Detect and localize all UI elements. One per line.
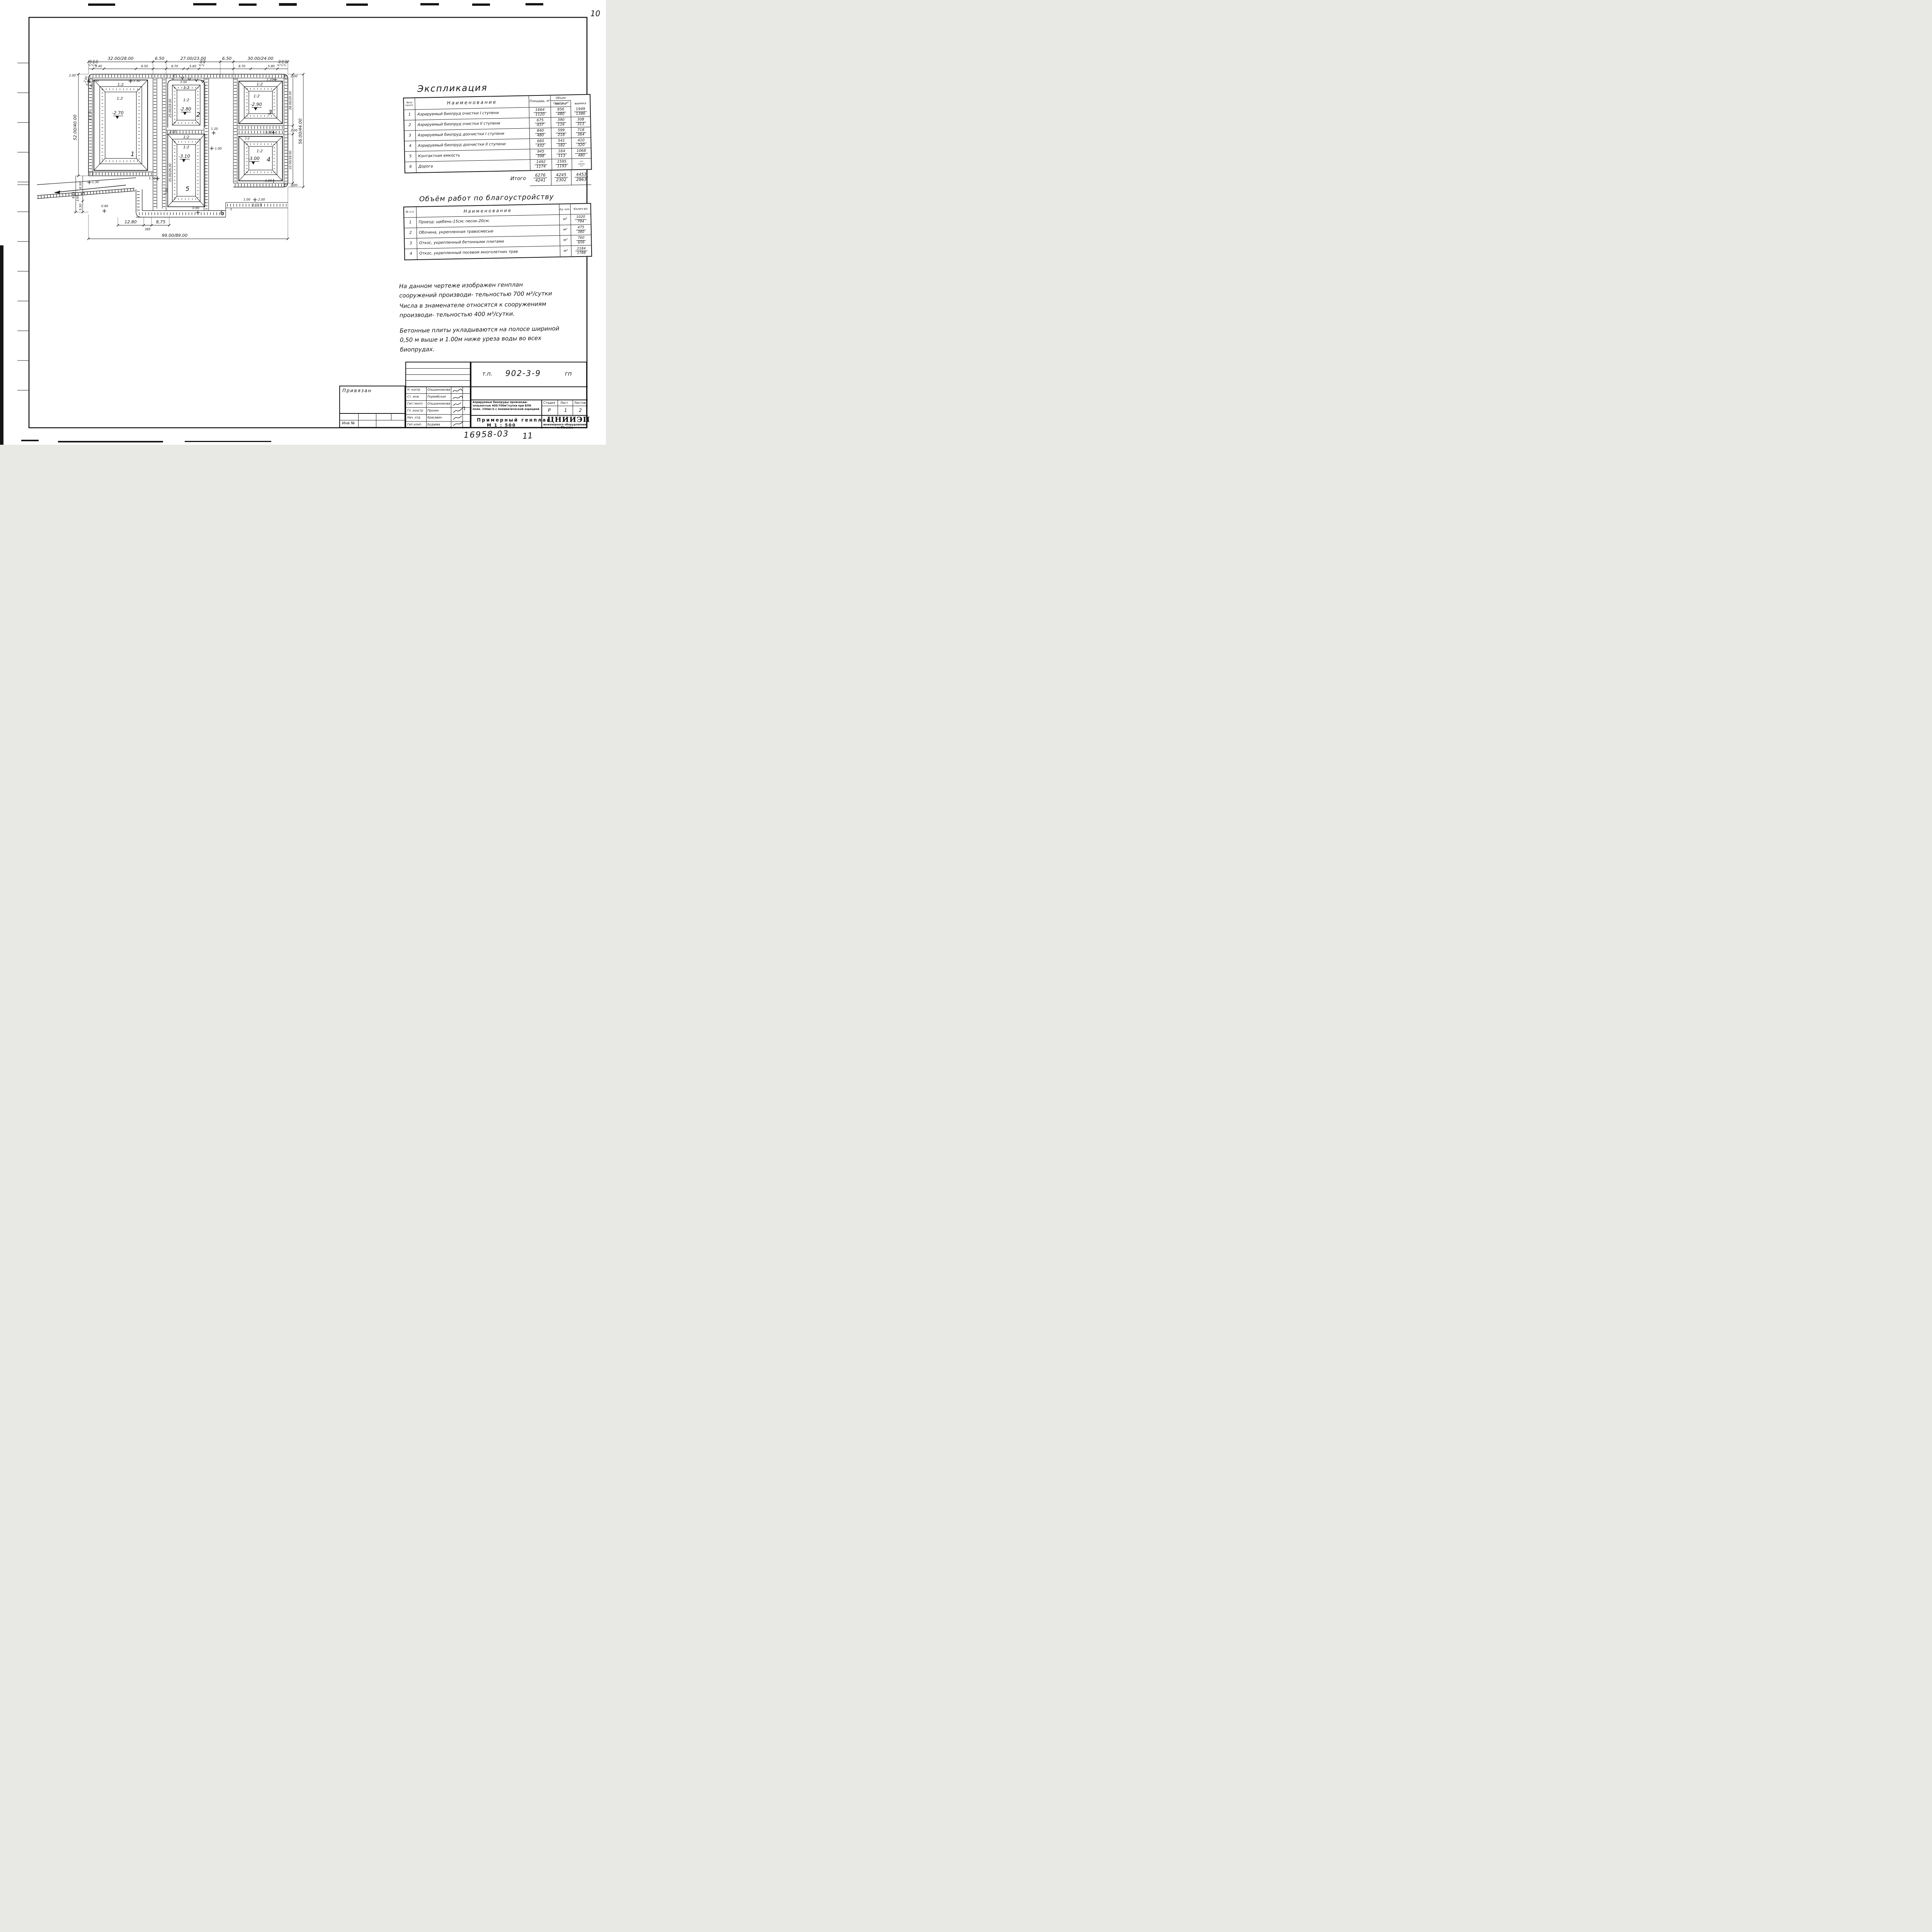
slope-label: 1:2 [117, 83, 124, 87]
cell: м² [560, 214, 571, 225]
cell: 5 [405, 151, 417, 162]
slope-label: 1:2 [183, 145, 189, 150]
cell: 14921174 [530, 159, 552, 170]
role: Нач. отд [407, 416, 420, 419]
dim: 6.50 [222, 56, 232, 61]
dim: 8.70 [171, 65, 178, 68]
col-header: Колич-во [571, 204, 591, 214]
slope-label-road: 1:1.5 [252, 203, 262, 207]
org-name: ЦНИИЭП [547, 415, 590, 424]
dim: 2.00 [291, 75, 298, 78]
dim: 32.00/28.00 [108, 56, 134, 61]
dim: 385 [145, 228, 150, 231]
slope-label: 1:2 [183, 98, 189, 102]
note-1: На данном чертеже изображен генплан соор… [399, 279, 562, 300]
stamp-bound-box: Привязан Инв № [339, 386, 405, 428]
stage-label: Стадия [543, 401, 555, 405]
total-label: Итого [444, 170, 530, 187]
bound-label: Привязан [342, 388, 372, 393]
cell: 1 [404, 110, 416, 121]
dim: 8,75 [156, 219, 166, 224]
cell: 599218 [551, 128, 572, 138]
tp-code: 902-3-9 [505, 369, 541, 378]
note-3: Бетонные плиты укладываются на полосе ши… [400, 324, 562, 354]
doc-number-handwritten: 16958-03 [464, 429, 509, 440]
role: Гл. констр [407, 409, 423, 412]
col-header: Объем грунта, м³ [551, 95, 571, 101]
pond4-number: 4 [267, 156, 270, 163]
cell: 3 [405, 238, 417, 249]
mark-100: 1.00 [243, 198, 250, 201]
mark-130: 1.30 [92, 180, 99, 184]
total-cell: 62764241 [530, 170, 552, 186]
slope-label-left: 1:1.5 [88, 111, 92, 121]
cell: 19491386 [571, 106, 590, 117]
sheets-value: 2 [579, 408, 582, 413]
dim-left-main: 52.00/40.00 [73, 115, 78, 141]
mark-110: 1.10 [267, 78, 274, 81]
role-name: Красавин [427, 416, 442, 419]
slope-label: 1:2 [245, 137, 250, 140]
dim-right-p3: 28.00/20.00 [289, 91, 292, 110]
cell: 475380 [571, 224, 591, 235]
cell: 4 [405, 141, 416, 152]
dim: 2.00 [291, 129, 298, 132]
cell: м² [560, 246, 572, 257]
pond3-number: 3 [268, 109, 272, 116]
total-cell: 44532863 [571, 169, 592, 185]
dim: 5.60 [189, 65, 196, 68]
dim-right-main: 56.00/44.00 [298, 119, 303, 145]
ekspl-table: №по генпл. Наименование Площадь, м² Объе… [403, 94, 592, 173]
cell: 2 [404, 120, 416, 131]
works-table: № п.п. Наименование Ед. изм. Колич-во 1 … [403, 203, 592, 260]
cell: 4 [405, 249, 418, 260]
cell: 840480 [530, 128, 552, 139]
drawing-title: Примерный генплан [477, 417, 551, 423]
stage-value: Р [548, 408, 551, 413]
dim: 5.80 [268, 65, 275, 68]
dim: 8.50 [141, 65, 148, 68]
ekspl-total-row: Итого 62764241 42452302 44532863 [444, 169, 592, 187]
mark-090: 0.90 [192, 206, 199, 210]
dim: 2.00 [291, 184, 298, 187]
stamp-main-box: т.п. 902-3-9 гп Аэрируемые биопруды прои… [471, 362, 587, 428]
cell: 1068480 [572, 148, 591, 159]
dim-bottom-main: 99.00/89.00 [162, 233, 188, 238]
mark-090: 0.90 [101, 204, 108, 208]
role: Гип комп. [407, 423, 422, 426]
dim-right-p4: 22.00/18.00 [289, 151, 292, 170]
dim: 3.95 [76, 195, 80, 201]
tp-label: т.п. [482, 371, 492, 377]
cell: м² [560, 225, 571, 236]
dim: 9.45 [72, 192, 75, 199]
cell: 2 [405, 228, 417, 239]
dim-lines-bottom [87, 187, 289, 240]
slope-label: 1:2 [117, 97, 123, 101]
slope-label: 1:2 [183, 135, 189, 139]
cell: 675437 [529, 117, 551, 128]
col-header: насыпь [551, 100, 571, 107]
dim: 30.00/24.00 [248, 56, 274, 61]
cell: 1020794 [571, 214, 591, 225]
mark-130: 1.30 [149, 177, 156, 180]
cell: 760656 [571, 235, 591, 246]
ekspl-title: Экспликация [417, 83, 488, 94]
dim: 5.50 [79, 204, 82, 211]
cell: 3 [405, 131, 416, 141]
inv-label: Инв № [342, 421, 355, 425]
notes: На данном чертеже изображен генплан соор… [399, 279, 563, 355]
page-number: 10 [590, 9, 600, 18]
dim-gap: 2.00 [169, 130, 176, 134]
role-name: Ольшанникова [427, 388, 450, 391]
slope-label: 1:2 [257, 149, 263, 153]
col-header: № п.п. [404, 207, 417, 218]
cell: 410320 [571, 138, 591, 148]
cell: 6 [405, 162, 417, 173]
dim: 3.50 [180, 80, 187, 84]
mark-100: 1.00 [215, 147, 222, 150]
cell: м² [560, 235, 571, 246]
pond5-number: 5 [185, 185, 189, 192]
dim: 6.50 [155, 56, 165, 61]
cell: 390116 [551, 117, 571, 128]
cell: 660432 [530, 138, 552, 149]
org-city: г. Москва [557, 426, 573, 429]
dim: 8.70 [238, 65, 245, 68]
mark-110: 1.10 [265, 131, 272, 134]
water-level-pond5: -3.10 [179, 153, 190, 159]
col-header: Площадь, м² [529, 95, 551, 107]
role: Н. контр [407, 388, 420, 391]
dim: 8.50 [79, 182, 82, 189]
mark-100: 1.00 [265, 179, 272, 182]
dim: 2.00 [69, 74, 76, 77]
mark-130: 1.30 [92, 79, 99, 83]
col-header: №по генпл. [404, 98, 415, 110]
water-level-pond2: -2.80 [180, 106, 191, 112]
cell: —— [572, 158, 591, 169]
extra-number-handwritten: 11 [522, 431, 533, 441]
cell: 164113 [552, 148, 572, 159]
dim-pond5: 35.00/26.00 [168, 163, 172, 182]
mark-130: 1.30 [133, 79, 140, 83]
cell: Откос, укрепленный посевом многолетних т… [417, 246, 560, 259]
stamp-roles-box: Н. контр Ольшанникова Ст. инж Порембская… [405, 362, 471, 428]
water-level-pond4: -3.00 [248, 156, 260, 161]
pond2-number: 2 [196, 111, 200, 118]
cell: 945598 [530, 149, 552, 160]
sheet-value: 1 [564, 408, 567, 413]
water-level-pond1: -2.70 [112, 110, 124, 116]
slope-label: 1:2 [257, 82, 263, 87]
pond-4 [239, 136, 282, 181]
sheet-label: Лист [560, 401, 568, 405]
mark-200: 2.00 [258, 198, 265, 201]
dim: 12.80 [124, 219, 137, 224]
pond-1 [94, 80, 148, 170]
cell: 308313 [571, 117, 590, 128]
cell: 541182 [551, 138, 572, 149]
cell: 16641120 [529, 107, 551, 118]
water-level-pond3: -2.90 [250, 102, 262, 107]
tp-series: гп [565, 370, 572, 377]
dim-pond2: 25.00/19.00 [168, 99, 172, 118]
cell: 1 [404, 218, 417, 228]
total-cell: 42452302 [551, 170, 572, 185]
cell: 718364 [571, 127, 591, 138]
drawing-sheet: 10 [0, 0, 606, 445]
slope-label: 1:2 [253, 94, 260, 99]
sheets-label: Листов [574, 401, 586, 405]
role-name: Ольшанникова [427, 402, 450, 405]
cell: Дорога [416, 160, 530, 172]
role: Гип генпл [407, 402, 423, 405]
signatures [452, 387, 470, 427]
drawing-scale: М 1 : 500 [487, 423, 516, 428]
slope-label: 1:2 [183, 86, 189, 90]
col-header: выемка [571, 100, 590, 106]
road-number: 6 [219, 209, 225, 217]
cell: 21841788 [571, 245, 592, 256]
role-name: Пронин [427, 409, 439, 412]
cell: 15951193 [552, 159, 572, 170]
col-header: Ед. изм. [560, 204, 571, 215]
project-name: Аэрируемые биопруды производи- тельность… [473, 401, 541, 415]
role: Ст. инж [407, 395, 419, 398]
mark-120: 1.20 [211, 127, 218, 131]
role-name: Порембская [427, 395, 446, 398]
cell: 956480 [551, 107, 571, 117]
role-name: Будаева [427, 423, 440, 426]
note-2: Числа в знаменателе относятся к сооружен… [399, 299, 562, 320]
pond1-number: 1 [131, 150, 134, 158]
